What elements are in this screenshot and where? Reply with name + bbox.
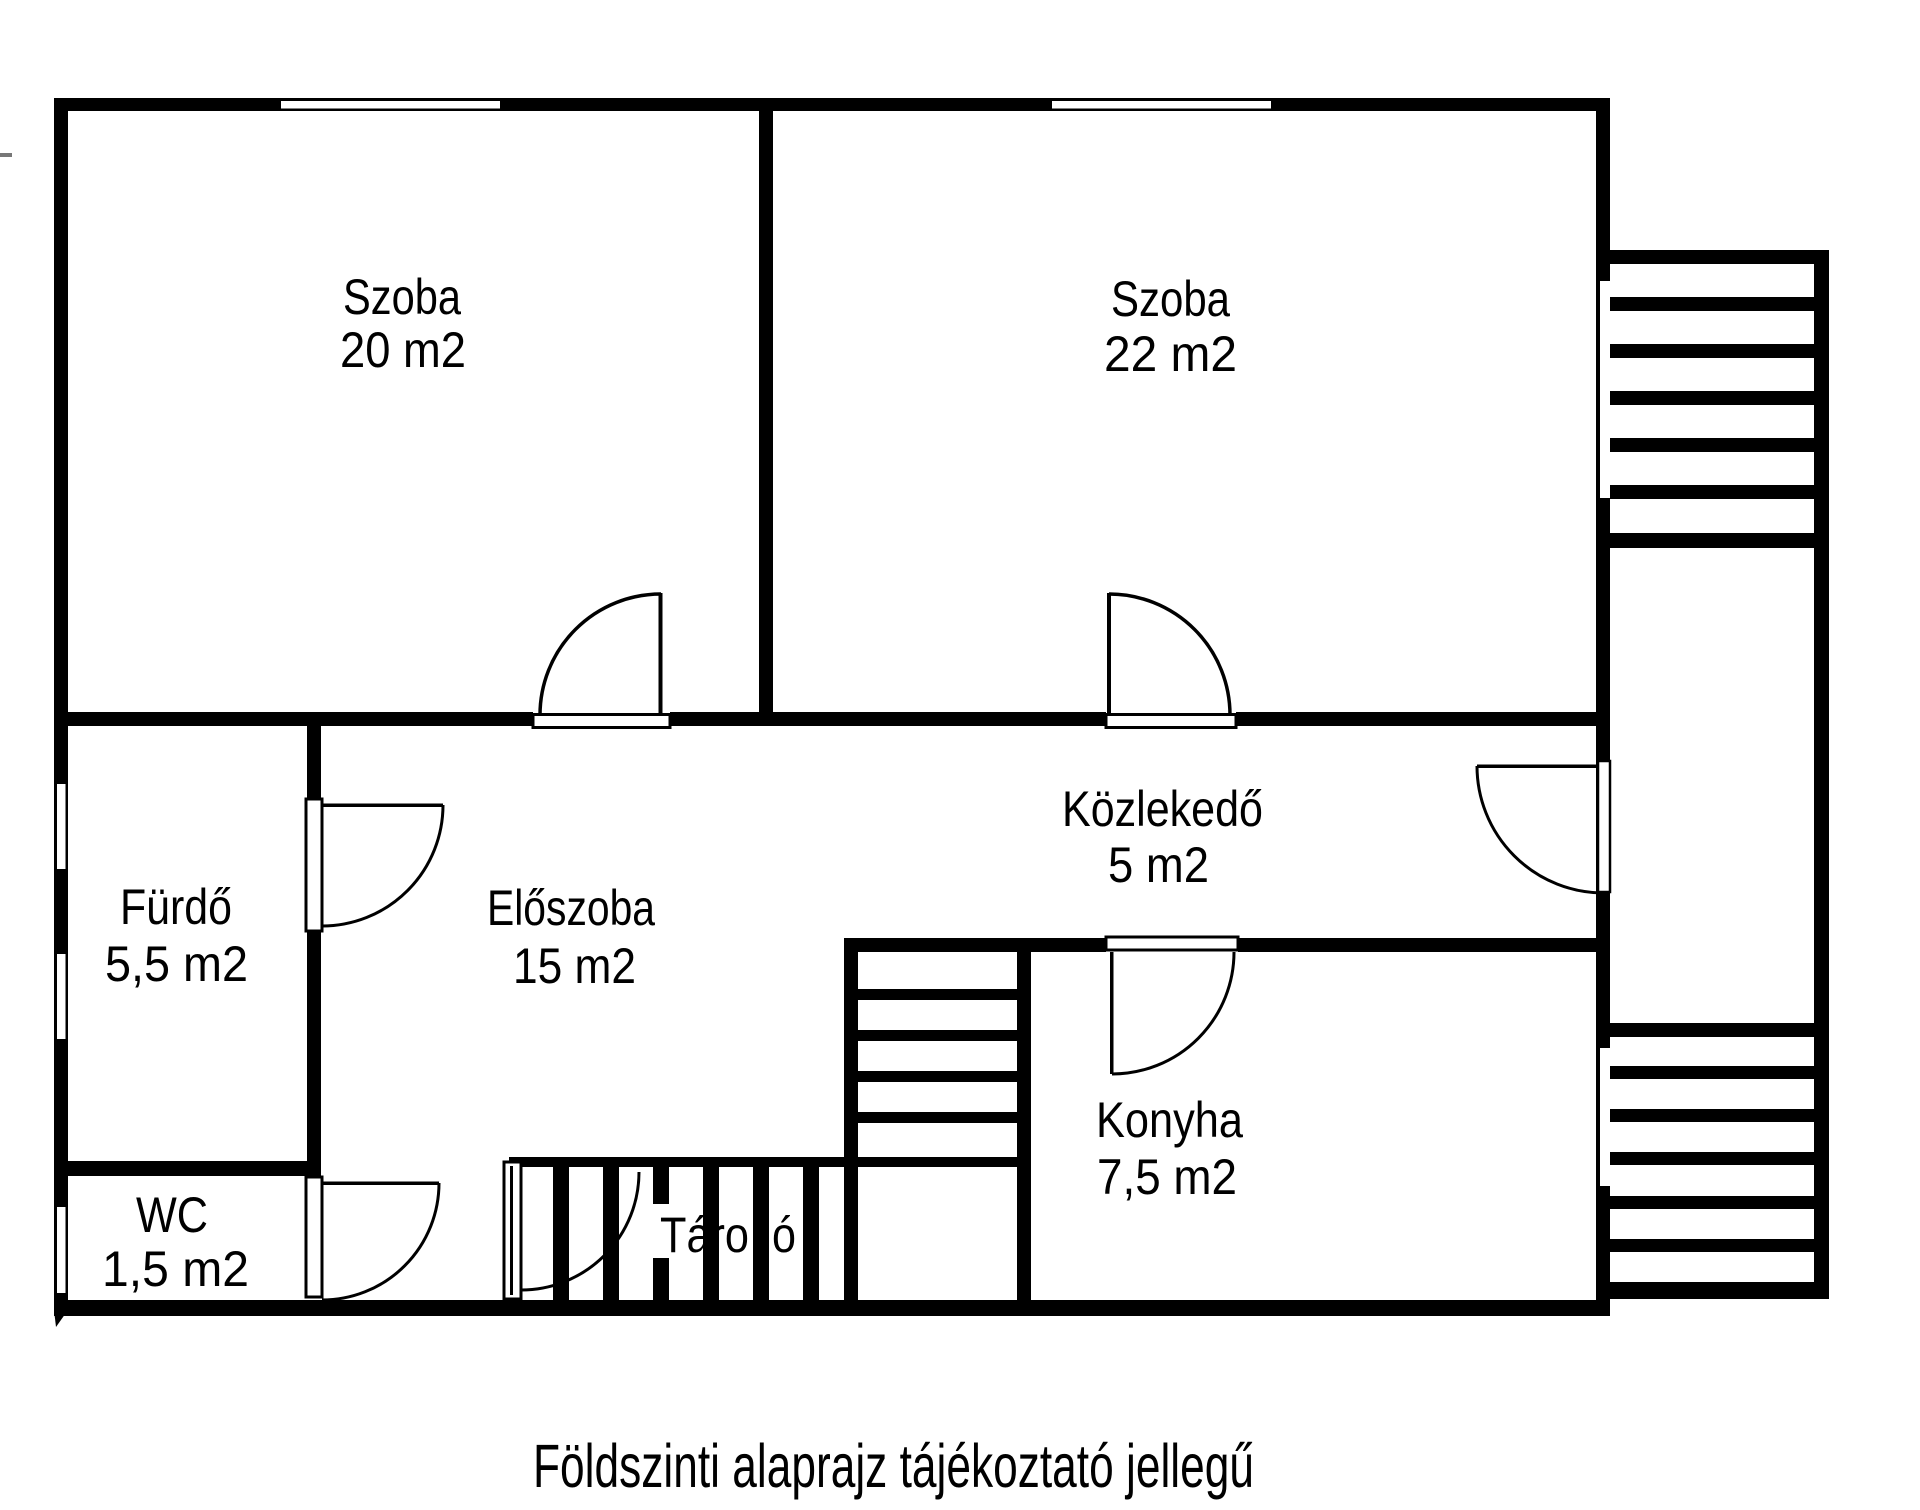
svg-text:Konyha: Konyha [1096, 1092, 1243, 1148]
svg-text:Közlekedő: Közlekedő [1062, 781, 1263, 837]
svg-text:Táro: Táro [660, 1207, 749, 1263]
svg-text:20 m2: 20 m2 [340, 322, 466, 378]
svg-text:5 m2: 5 m2 [1108, 837, 1209, 893]
svg-text:Szoba: Szoba [343, 269, 461, 325]
svg-text:5,5 m2: 5,5 m2 [105, 936, 248, 992]
svg-text:7,5 m2: 7,5 m2 [1097, 1149, 1237, 1205]
svg-text:WC: WC [136, 1187, 208, 1243]
svg-text:1,5 m2: 1,5 m2 [102, 1241, 249, 1297]
svg-text:Előszoba: Előszoba [487, 880, 655, 936]
svg-text:Földszinti alaprajz tájékoztat: Földszinti alaprajz tájékoztató jellegű [533, 1432, 1254, 1500]
svg-text:Szoba: Szoba [1111, 271, 1230, 327]
svg-text:Fürdő: Fürdő [120, 879, 232, 935]
svg-text:ó: ó [772, 1207, 796, 1263]
svg-text:15 m2: 15 m2 [513, 938, 636, 994]
svg-text:22 m2: 22 m2 [1104, 326, 1237, 382]
